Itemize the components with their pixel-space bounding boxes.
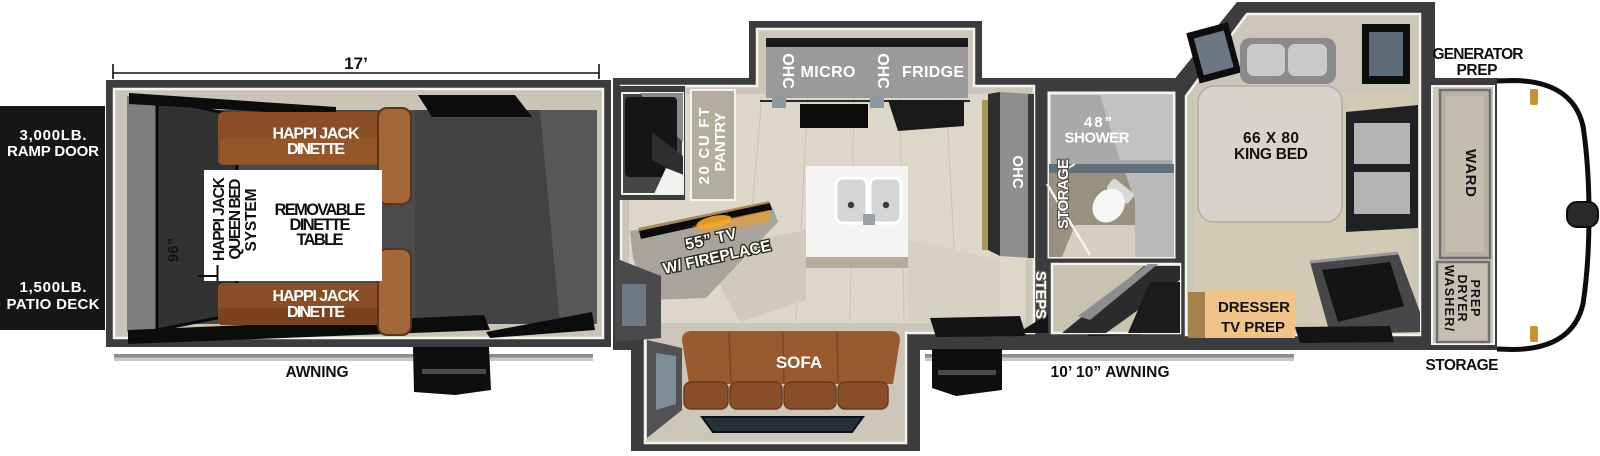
svg-text:PREP: PREP <box>1468 280 1482 317</box>
svg-text:17’: 17’ <box>344 54 368 73</box>
svg-text:QUEEN BED: QUEEN BED <box>227 179 244 260</box>
svg-text:HAPPI JACK: HAPPI JACK <box>273 288 360 305</box>
svg-text:48”: 48” <box>1084 114 1112 131</box>
svg-text:OHC: OHC <box>779 53 796 89</box>
svg-text:PREP: PREP <box>1457 62 1498 79</box>
svg-text:GENERATOR: GENERATOR <box>1433 46 1524 63</box>
svg-text:SHOWER: SHOWER <box>1065 130 1130 147</box>
svg-text:HAPPI JACK: HAPPI JACK <box>273 126 360 143</box>
svg-text:OHC: OHC <box>874 53 891 89</box>
svg-text:10’ 10” AWNING: 10’ 10” AWNING <box>1051 364 1170 381</box>
svg-text:TABLE: TABLE <box>297 231 344 249</box>
svg-text:PANTRY: PANTRY <box>712 113 729 172</box>
svg-text:96”: 96” <box>165 238 182 262</box>
svg-text:SOFA: SOFA <box>776 353 822 372</box>
svg-text:AWNING: AWNING <box>286 364 349 381</box>
svg-text:STORAGE: STORAGE <box>1426 357 1499 374</box>
svg-text:PATIO DECK: PATIO DECK <box>7 296 100 313</box>
svg-text:RAMP DOOR: RAMP DOOR <box>7 143 99 160</box>
svg-text:WASHER/: WASHER/ <box>1442 265 1456 332</box>
svg-text:DINETTE: DINETTE <box>287 304 345 321</box>
svg-text:STORAGE: STORAGE <box>1055 159 1072 229</box>
svg-text:66 X 80: 66 X 80 <box>1243 130 1299 147</box>
svg-text:HAPPI JACK: HAPPI JACK <box>211 176 228 261</box>
svg-text:DINETTE: DINETTE <box>287 141 345 158</box>
svg-text:MICRO: MICRO <box>801 64 856 81</box>
svg-text:DRYER: DRYER <box>1455 275 1469 322</box>
svg-text:WARD: WARD <box>1462 149 1479 197</box>
svg-text:STEPS: STEPS <box>1032 271 1049 319</box>
svg-text:20 CU FT: 20 CU FT <box>696 108 713 185</box>
svg-text:DRESSER: DRESSER <box>1218 299 1290 316</box>
svg-text:1,500LB.: 1,500LB. <box>20 279 87 296</box>
svg-text:TV PREP: TV PREP <box>1221 319 1285 336</box>
svg-text:3,000LB.: 3,000LB. <box>20 127 87 144</box>
svg-text:KING BED: KING BED <box>1234 146 1308 163</box>
svg-text:FRIDGE: FRIDGE <box>902 64 964 81</box>
svg-text:OHC: OHC <box>1009 155 1026 189</box>
svg-text:SYSTEM: SYSTEM <box>243 189 260 252</box>
